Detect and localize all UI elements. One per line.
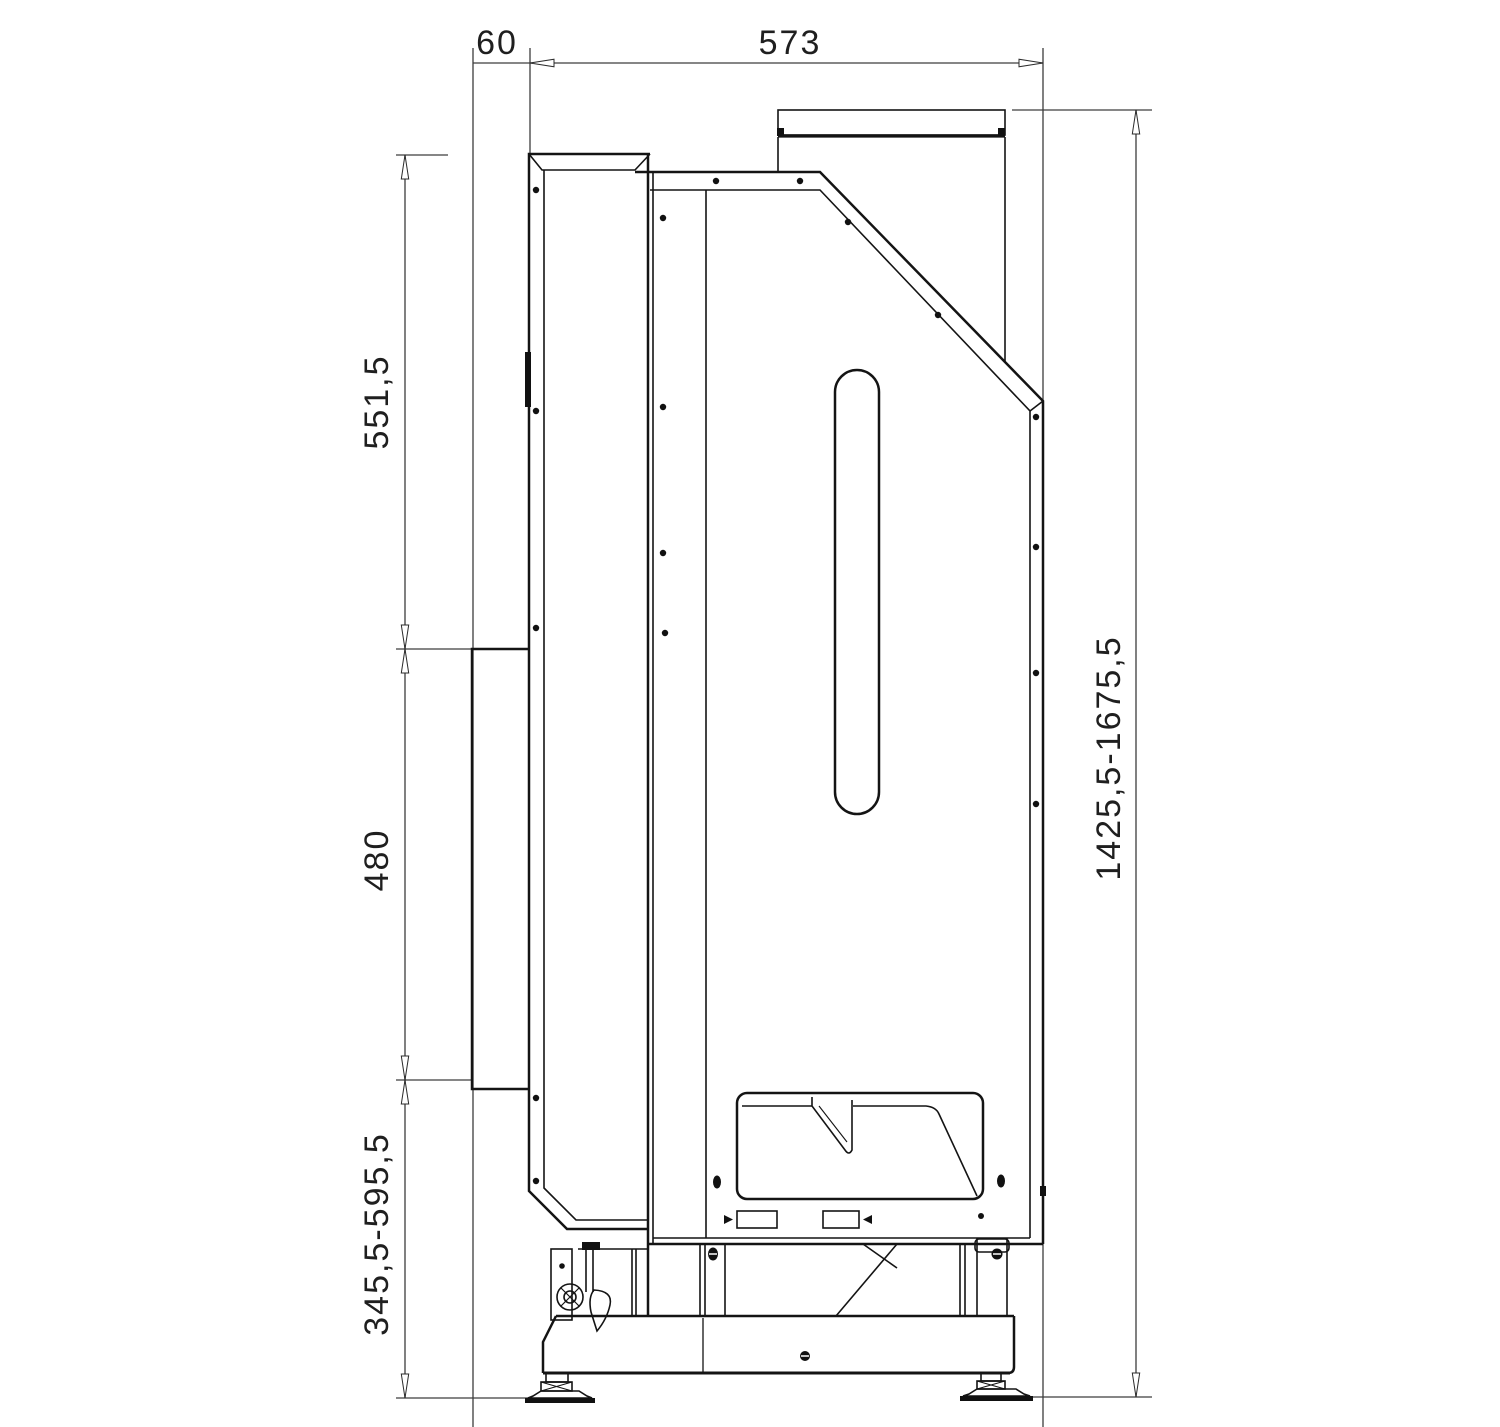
plinth-right — [1008, 1316, 1014, 1373]
frame-screw — [660, 550, 666, 556]
side-panel — [635, 172, 1046, 1244]
convection-slot — [835, 370, 879, 814]
foot-cone — [528, 1391, 592, 1398]
foot-base-plate — [525, 1398, 595, 1403]
dimension-top: 60 573 — [473, 24, 1043, 67]
dim-label-door-height: 480 — [358, 829, 396, 892]
arrowhead-up-649 — [401, 649, 408, 673]
pellet-chute-inner — [819, 1106, 847, 1142]
dim-label-top-depth: 573 — [759, 24, 822, 62]
leveling-foot-right — [960, 1373, 1033, 1401]
wall-top-cap — [529, 154, 650, 170]
base-bracket-cap — [975, 1239, 1009, 1252]
plinth-left — [543, 1316, 556, 1373]
panel-screw — [845, 219, 851, 225]
wall-inner-edge — [544, 170, 648, 1220]
panel-screw — [935, 312, 941, 318]
panel-screw — [797, 178, 803, 184]
panel-screw — [1033, 670, 1039, 676]
wall-screw — [533, 408, 539, 414]
flue-collar — [778, 110, 1005, 135]
arrowhead-down-649 — [401, 625, 408, 649]
slope-end-cap — [1030, 401, 1043, 411]
foot-cone — [963, 1389, 1030, 1396]
door-front-face — [472, 649, 529, 1089]
dim-label-lower-height: 345,5-595,5 — [358, 1132, 396, 1336]
wall-screw — [533, 1095, 539, 1101]
dimension-right: 1425,5-1675,5 — [1090, 110, 1140, 1397]
left-wall — [525, 154, 650, 1229]
dimension-extension-lines — [396, 48, 1152, 1427]
leveling-foot-left — [525, 1373, 595, 1403]
panel-weld-mark — [1040, 1186, 1046, 1196]
opening-inner-top-right — [853, 1106, 977, 1196]
latch-pin — [586, 1246, 593, 1292]
pellet-chute-wedge — [812, 1097, 852, 1153]
arrowhead-up-top — [401, 155, 408, 179]
latch-screw — [559, 1263, 565, 1269]
technical-drawing-page: 60 573 551,5 480 345,5-595,5 1425,5-1675… — [0, 0, 1500, 1427]
latch-hook — [590, 1290, 610, 1331]
base-post-front — [632, 1249, 636, 1316]
arrowhead-right — [1019, 59, 1043, 67]
panel-screw — [713, 178, 719, 184]
foot-nut-hatch — [977, 1381, 1005, 1389]
base-frame — [578, 1238, 1009, 1316]
vent-arrow-right — [863, 1215, 872, 1224]
dim-label-top-offset: 60 — [476, 24, 518, 62]
arrowhead-up — [1132, 110, 1139, 134]
plinth — [543, 1316, 1014, 1373]
latch-pin-cap — [582, 1242, 600, 1250]
arrowhead-left — [530, 59, 554, 67]
frame-screw — [660, 215, 666, 221]
opening-screw-right — [997, 1175, 1005, 1188]
door-latch — [551, 1242, 610, 1331]
vent-arrow-left — [724, 1215, 733, 1224]
wall-screw — [533, 187, 539, 193]
dim-label-upper-height: 551,5 — [358, 354, 396, 449]
technical-drawing: 60 573 551,5 480 345,5-595,5 1425,5-1675… — [0, 0, 1500, 1427]
arrowhead-up-1080 — [401, 1080, 408, 1104]
front-frame — [648, 155, 706, 1316]
vent-plate-right — [823, 1211, 859, 1228]
frame-screw — [660, 404, 666, 410]
opening-screw-left — [713, 1176, 721, 1189]
arrowhead-down — [1132, 1373, 1139, 1397]
door-recess — [472, 649, 529, 1089]
dimension-left-chain: 551,5 480 345,5-595,5 — [358, 155, 409, 1398]
panel-screw — [1033, 544, 1039, 550]
door-hinge-pin — [525, 352, 531, 407]
wall-outer-edge — [529, 154, 650, 1229]
panel-outer-contour — [635, 172, 1043, 1244]
foot-nut-hatch — [541, 1382, 572, 1391]
firebox-opening — [713, 1093, 1005, 1228]
air-slot — [835, 370, 879, 814]
wall-screw — [533, 1178, 539, 1184]
arrowhead-down-1080 — [401, 1056, 408, 1080]
vent-dot — [978, 1213, 984, 1219]
chute-fold-lower — [836, 1244, 897, 1316]
flue-outlet — [777, 110, 1005, 362]
vent-plate-left — [737, 1211, 777, 1228]
wall-screw — [533, 625, 539, 631]
dim-label-total-height: 1425,5-1675,5 — [1090, 635, 1128, 880]
foot-base-plate — [960, 1396, 1033, 1401]
arrowhead-down-bottom — [401, 1374, 408, 1398]
opening-outline — [737, 1093, 983, 1199]
flue-corner-right — [998, 128, 1005, 136]
panel-screw — [1033, 801, 1039, 807]
panel-screw — [1033, 414, 1039, 420]
flue-corner-left — [777, 128, 784, 136]
frame-screw — [662, 630, 668, 636]
panel-inner-contour — [650, 190, 1030, 1238]
